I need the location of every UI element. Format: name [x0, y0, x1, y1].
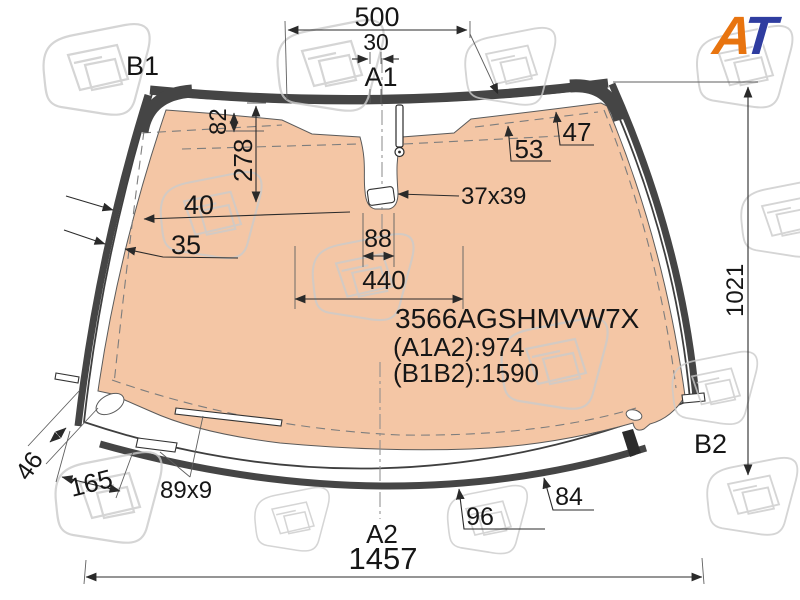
- windshield-diagram-page: 500 30 A1 B1 82 278 40 35 53 47 37x39 88…: [0, 0, 800, 600]
- dim-top-width: 500: [354, 2, 399, 32]
- camera-window: [367, 186, 395, 205]
- watermark-logo: [741, 180, 800, 257]
- dim-mirror-width: 88: [364, 225, 392, 253]
- watermark-logo: [255, 487, 329, 550]
- dim-bottom-corner-length: 165: [66, 463, 115, 503]
- dim-camera-window: 37x39: [461, 183, 526, 210]
- dim-dash-inset-right-2: 47: [563, 117, 592, 147]
- dim-bottom-width: 1457: [349, 541, 418, 576]
- point-b1-label: B1: [126, 51, 159, 81]
- dim-dash-inset-right-1: 53: [515, 134, 544, 164]
- windshield-diagram: 500 30 A1 B1 82 278 40 35 53 47 37x39 88…: [0, 0, 800, 600]
- dim-mirror-drop: 278: [228, 139, 258, 182]
- dim-bottom-inset-2: 96: [466, 503, 494, 531]
- dim-top-edge-inset: 82: [205, 108, 232, 135]
- dim-mirror-zone-width: 440: [362, 265, 405, 295]
- part-dim-b1b2: (B1B2):1590: [393, 358, 539, 388]
- dim-bottom-inset-1: 84: [555, 483, 583, 511]
- at-logo: A T: [706, 5, 787, 66]
- point-b2-label: B2: [694, 429, 727, 459]
- watermark-logo: [707, 458, 797, 535]
- dim-glass-height: 1021: [722, 264, 749, 317]
- point-a1-label: A1: [364, 62, 397, 92]
- antenna-element: [395, 105, 404, 157]
- dim-edge-inset-left: 35: [171, 230, 201, 260]
- part-code: 3566AGSHMVW7X: [395, 303, 640, 334]
- dim-corner-width: 46: [10, 447, 49, 486]
- side-tab-left: [55, 373, 79, 383]
- dim-sensor-strip: 89x9: [160, 477, 212, 504]
- dim-antenna-offset: 30: [363, 29, 389, 55]
- dim-dash-inset-left: 40: [184, 190, 214, 220]
- side-tab-right: [682, 393, 705, 403]
